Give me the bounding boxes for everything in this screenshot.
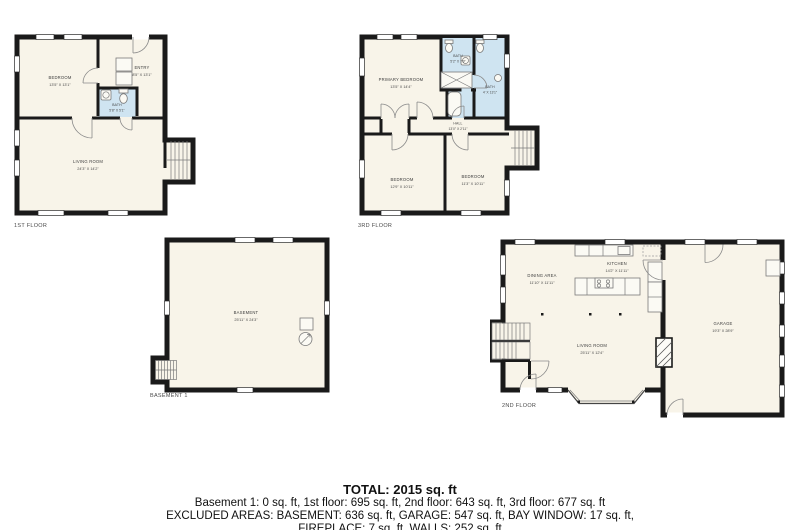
sink-icon: [495, 75, 502, 82]
svg-text:14'2" X 11'11": 14'2" X 11'11": [605, 269, 629, 273]
first-floor-caption: 1ST FLOOR: [14, 223, 47, 229]
svg-text:BEDROOM: BEDROOM: [48, 75, 71, 80]
toilet-icon: [476, 40, 484, 44]
svg-text:ENTRY: ENTRY: [134, 65, 149, 70]
svg-text:11'3" X 10'11": 11'3" X 10'11": [461, 182, 485, 186]
first-floor-plan: BEDROOM 13'5" X 13'1" ENTRY 8'5" X 13'1"…: [12, 30, 197, 222]
electrical-panel-icon: [300, 318, 313, 330]
svg-text:BEDROOM: BEDROOM: [461, 174, 484, 179]
svg-text:LIVING ROOM: LIVING ROOM: [73, 159, 103, 164]
svg-text:BATH: BATH: [112, 103, 122, 107]
excluded-areas-line-1: EXCLUDED AREAS: BASEMENT: 636 sq. ft, GA…: [0, 510, 800, 523]
svg-text:BASEMENT: BASEMENT: [234, 310, 259, 315]
floor-areas-line: Basement 1: 0 sq. ft, 1st floor: 695 sq.…: [0, 497, 800, 510]
total-area: TOTAL: 2015 sq. ft: [0, 483, 800, 497]
svg-text:5'8" X 5'1": 5'8" X 5'1": [109, 109, 125, 113]
svg-text:25'11" X 24'3": 25'11" X 24'3": [234, 318, 258, 322]
third-floor-plan: PRIMARY BEDROOM 13'5" X 14'4" BATH 5'2" …: [357, 30, 542, 222]
third-floor-caption: 3RD FLOOR: [358, 223, 392, 229]
bay-window: [568, 388, 645, 404]
excluded-areas-line-2: FIREPLACE: 7 sq. ft, WALLS: 252 sq. ft: [0, 523, 800, 530]
svg-text:BEDROOM: BEDROOM: [390, 177, 413, 182]
svg-text:25'11" X 12'4": 25'11" X 12'4": [580, 351, 604, 355]
second-floor-plan: DINING AREA 11'10" X 11'11" KITCHEN 14'2…: [490, 230, 800, 425]
toilet-icon: [445, 40, 453, 44]
refrigerator-icon: [648, 262, 662, 312]
svg-text:13'5" X 14'4": 13'5" X 14'4": [390, 85, 412, 89]
svg-text:12'9" X 10'11": 12'9" X 10'11": [390, 185, 414, 189]
bathtub-icon: [448, 92, 461, 116]
svg-text:13'0" X 2'11": 13'0" X 2'11": [449, 127, 469, 131]
fireplace-icon: [656, 338, 672, 367]
svg-text:KITCHEN: KITCHEN: [607, 261, 627, 266]
meter-icon: [299, 333, 312, 346]
second-floor-caption: 2ND FLOOR: [502, 403, 536, 409]
area-summary: TOTAL: 2015 sq. ft Basement 1: 0 sq. ft,…: [0, 483, 800, 530]
svg-text:HALL: HALL: [453, 122, 462, 126]
water-heater-icon: [766, 260, 780, 276]
svg-text:GARAGE: GARAGE: [713, 321, 732, 326]
basement-plan: BASEMENT 25'11" X 24'3": [145, 235, 335, 415]
svg-text:11'10" X 11'11": 11'10" X 11'11": [530, 281, 555, 285]
basement-outline: [153, 240, 327, 390]
floor-plan-page: BEDROOM 13'5" X 13'1" ENTRY 8'5" X 13'1"…: [0, 0, 800, 530]
kitchen-island: [575, 278, 640, 295]
svg-text:BATH: BATH: [453, 54, 463, 58]
svg-text:8'5" X 13'1": 8'5" X 13'1": [132, 73, 152, 77]
svg-text:24'3" X 14'2": 24'3" X 14'2": [77, 167, 99, 171]
kitchen-sink-icon: [618, 247, 630, 255]
first-floor-outline: [17, 37, 193, 213]
toilet-icon: [119, 89, 128, 93]
svg-text:19'3" X 28'9": 19'3" X 28'9": [712, 329, 734, 333]
svg-text:LIVING ROOM: LIVING ROOM: [577, 343, 607, 348]
svg-text:DINING AREA: DINING AREA: [527, 273, 556, 278]
basement-caption: BASEMENT 1: [150, 393, 188, 399]
svg-text:BATH: BATH: [485, 85, 495, 89]
svg-text:5'2" X 7'9": 5'2" X 7'9": [450, 60, 466, 64]
svg-text:4' X 13'1": 4' X 13'1": [483, 91, 498, 95]
svg-text:PRIMARY BEDROOM: PRIMARY BEDROOM: [379, 77, 424, 82]
svg-text:13'5" X 13'1": 13'5" X 13'1": [49, 83, 71, 87]
